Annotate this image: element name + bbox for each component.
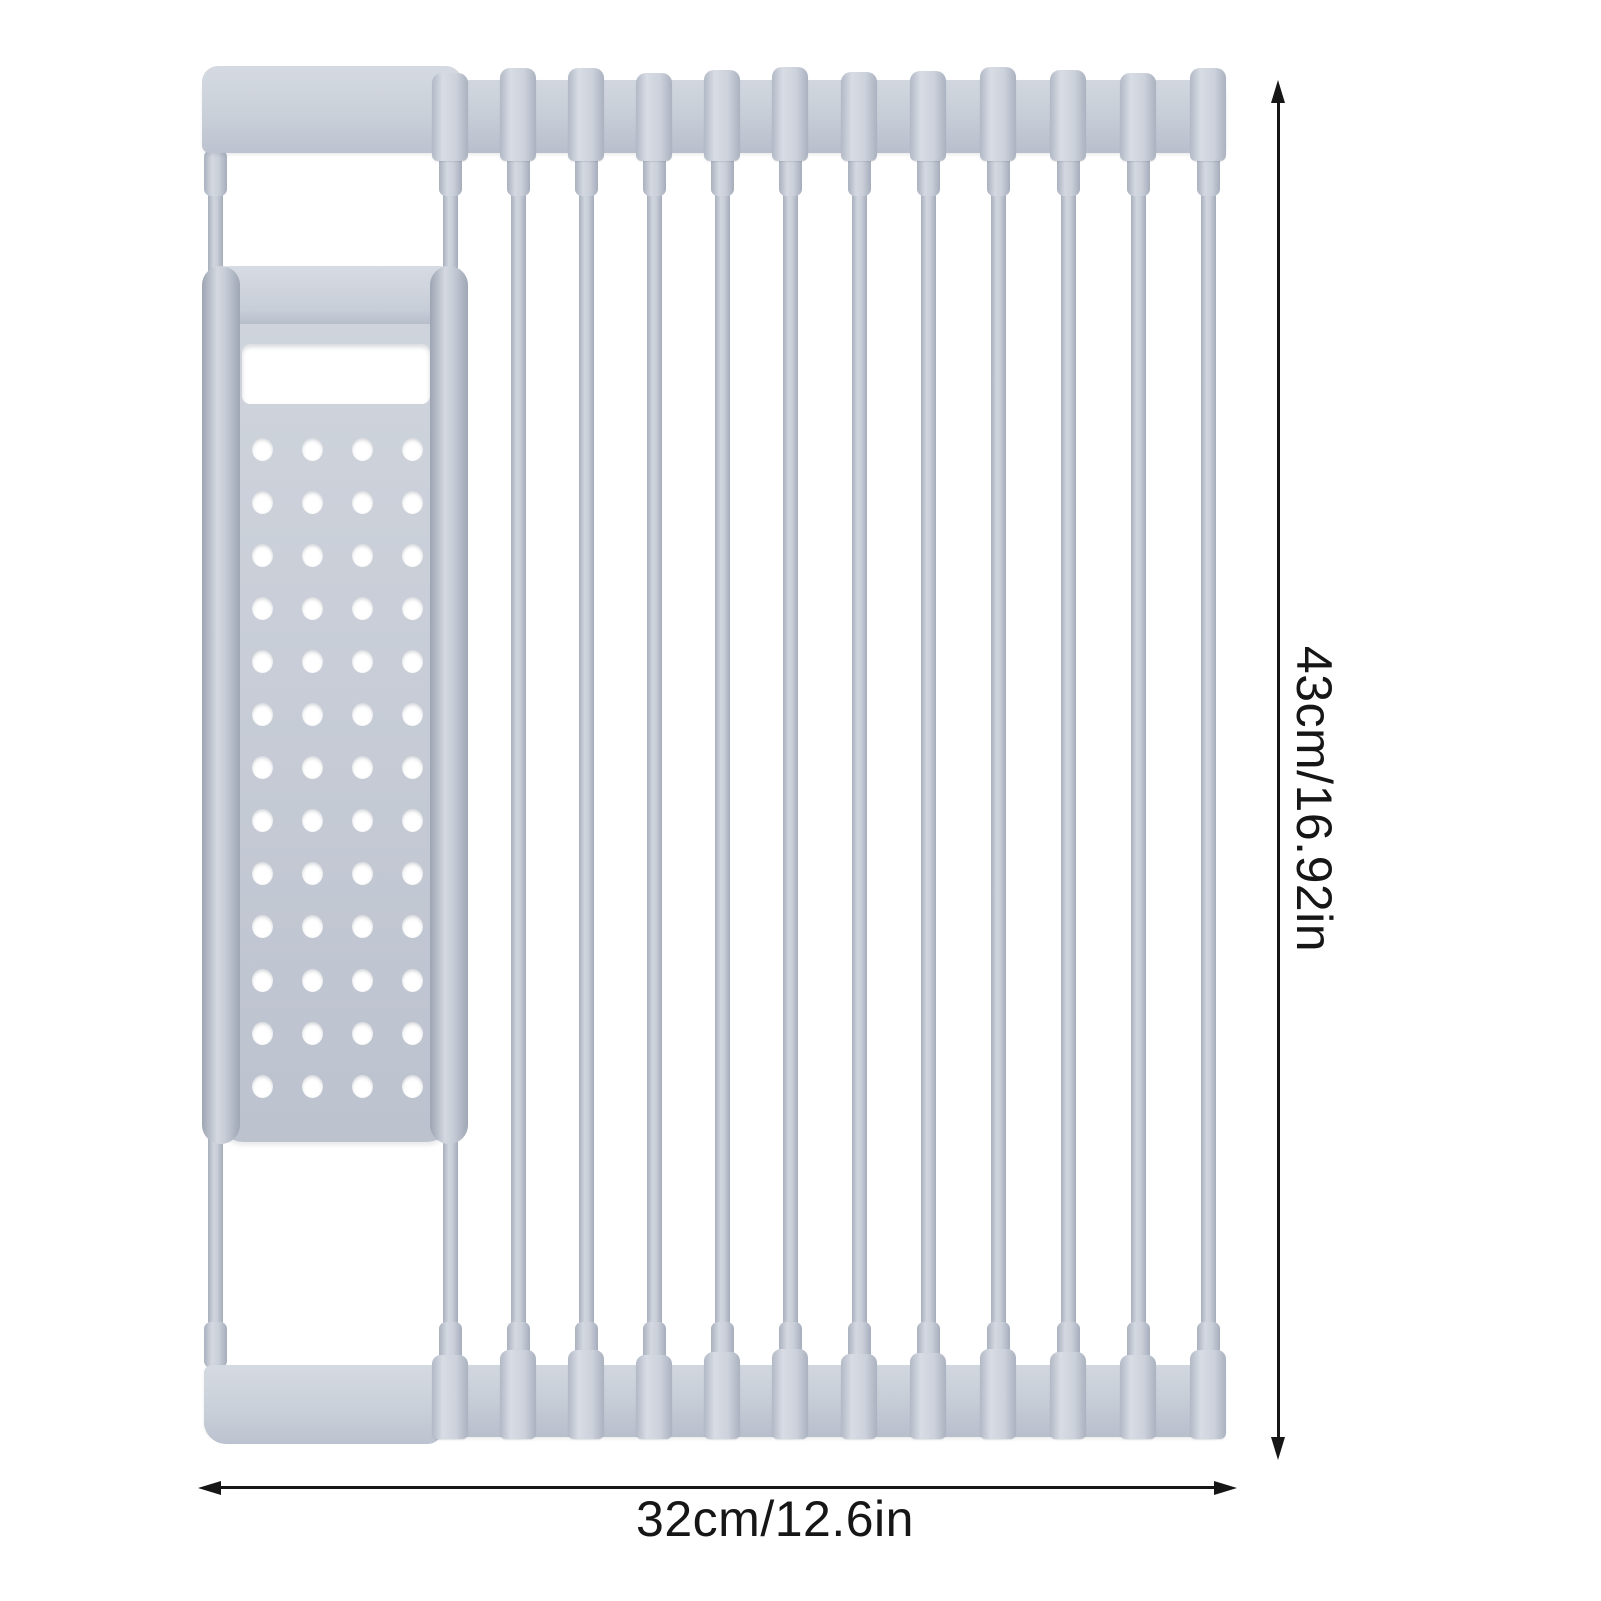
bottom-band-cap bbox=[772, 1349, 808, 1439]
rack-rod bbox=[991, 142, 1006, 1372]
drain-hole bbox=[352, 809, 373, 832]
bottom-band-cap bbox=[636, 1355, 672, 1439]
drain-hole bbox=[402, 1075, 423, 1098]
drain-hole bbox=[352, 544, 373, 567]
drain-hole bbox=[402, 650, 423, 673]
bottom-band-cap bbox=[1120, 1355, 1156, 1439]
height-arrow-up-icon bbox=[1271, 80, 1285, 103]
drain-hole bbox=[402, 809, 423, 832]
drain-hole bbox=[252, 597, 273, 620]
panel-left-tube bbox=[202, 266, 240, 1144]
drain-hole bbox=[302, 756, 323, 779]
drain-hole bbox=[402, 1022, 423, 1045]
width-arrow-right-icon bbox=[1214, 1481, 1237, 1495]
drain-hole bbox=[302, 438, 323, 461]
panel-right-tube bbox=[430, 266, 468, 1144]
top-band-cap bbox=[636, 73, 672, 161]
drain-hole bbox=[302, 597, 323, 620]
top-band-cap bbox=[432, 73, 468, 161]
drain-hole bbox=[302, 915, 323, 938]
bottom-band-cap bbox=[841, 1354, 877, 1439]
top-band-cap bbox=[910, 71, 946, 161]
bottom-band-cap bbox=[568, 1350, 604, 1439]
rack-rod bbox=[511, 142, 526, 1372]
drain-hole bbox=[302, 969, 323, 992]
drain-hole bbox=[402, 969, 423, 992]
top-band-cap bbox=[1050, 70, 1086, 161]
drain-hole bbox=[352, 756, 373, 779]
drain-hole bbox=[252, 1075, 273, 1098]
width-arrow-left-icon bbox=[198, 1481, 221, 1495]
drain-hole bbox=[252, 703, 273, 726]
drain-hole bbox=[252, 438, 273, 461]
drain-hole bbox=[302, 862, 323, 885]
panel-handle-slot bbox=[242, 344, 430, 404]
drain-hole bbox=[252, 544, 273, 567]
drain-hole bbox=[402, 862, 423, 885]
top-band-flat-section bbox=[202, 66, 462, 153]
bottom-band-flat-section bbox=[204, 1365, 442, 1444]
drain-hole bbox=[302, 703, 323, 726]
drain-hole bbox=[402, 491, 423, 514]
height-dimension-label: 43cm/16.92in bbox=[1285, 646, 1343, 952]
rack-rod bbox=[579, 142, 594, 1372]
drain-hole bbox=[252, 650, 273, 673]
width-dimension-line bbox=[214, 1486, 1222, 1489]
bottom-band-cap bbox=[980, 1349, 1016, 1439]
drain-hole bbox=[252, 1022, 273, 1045]
drain-hole bbox=[252, 809, 273, 832]
height-arrow-down-icon bbox=[1271, 1437, 1285, 1460]
rack-rod bbox=[852, 142, 867, 1372]
bottom-band-cap bbox=[500, 1350, 536, 1439]
top-band-cap bbox=[1190, 68, 1226, 161]
rack-rod bbox=[715, 142, 730, 1372]
bottom-band-cap bbox=[704, 1352, 740, 1439]
drain-hole bbox=[352, 650, 373, 673]
drain-hole bbox=[252, 756, 273, 779]
drain-hole bbox=[252, 862, 273, 885]
drain-hole bbox=[352, 969, 373, 992]
bottom-band-cap bbox=[1190, 1350, 1226, 1439]
top-band-cap bbox=[772, 67, 808, 161]
drain-hole bbox=[252, 915, 273, 938]
bottom-band-cap bbox=[432, 1355, 468, 1439]
drain-hole bbox=[402, 597, 423, 620]
panel-top-roll bbox=[208, 266, 462, 324]
width-dimension-label: 32cm/12.6in bbox=[636, 1490, 914, 1548]
drain-hole bbox=[402, 438, 423, 461]
top-band-cap bbox=[704, 70, 740, 161]
product-dimension-diagram: 43cm/16.92in 32cm/12.6in bbox=[0, 0, 1601, 1601]
drain-hole bbox=[302, 1075, 323, 1098]
drain-hole bbox=[352, 703, 373, 726]
rack-rod bbox=[1201, 142, 1216, 1372]
drain-hole bbox=[252, 491, 273, 514]
drain-hole bbox=[402, 915, 423, 938]
rack-rod bbox=[783, 142, 798, 1372]
top-band-cap bbox=[568, 68, 604, 161]
drain-hole bbox=[352, 491, 373, 514]
top-band-cap bbox=[841, 72, 877, 161]
drain-hole bbox=[352, 1075, 373, 1098]
utensil-holder-panel bbox=[202, 264, 468, 1146]
drain-hole bbox=[352, 1022, 373, 1045]
bottom-band-cap bbox=[910, 1353, 946, 1439]
bottom-band-cap bbox=[1050, 1352, 1086, 1439]
drain-hole bbox=[402, 756, 423, 779]
top-band-cap bbox=[500, 68, 536, 161]
top-band-cap bbox=[1120, 73, 1156, 161]
rack-rod bbox=[1131, 142, 1146, 1372]
rack-rod bbox=[647, 142, 662, 1372]
drain-hole bbox=[352, 597, 373, 620]
drain-hole bbox=[352, 862, 373, 885]
drain-hole bbox=[302, 544, 323, 567]
drain-hole bbox=[302, 1022, 323, 1045]
rod-collar bbox=[204, 150, 227, 196]
drain-hole bbox=[352, 915, 373, 938]
drain-hole bbox=[302, 650, 323, 673]
rod-collar bbox=[204, 1322, 227, 1368]
drain-hole bbox=[402, 544, 423, 567]
drain-hole bbox=[302, 809, 323, 832]
rack-rod bbox=[1061, 142, 1076, 1372]
drain-hole bbox=[252, 969, 273, 992]
top-band-cap bbox=[980, 67, 1016, 161]
rack-rod bbox=[921, 142, 936, 1372]
height-dimension-line bbox=[1277, 98, 1280, 1442]
drain-hole bbox=[402, 703, 423, 726]
drain-hole bbox=[302, 491, 323, 514]
drain-hole bbox=[352, 438, 373, 461]
